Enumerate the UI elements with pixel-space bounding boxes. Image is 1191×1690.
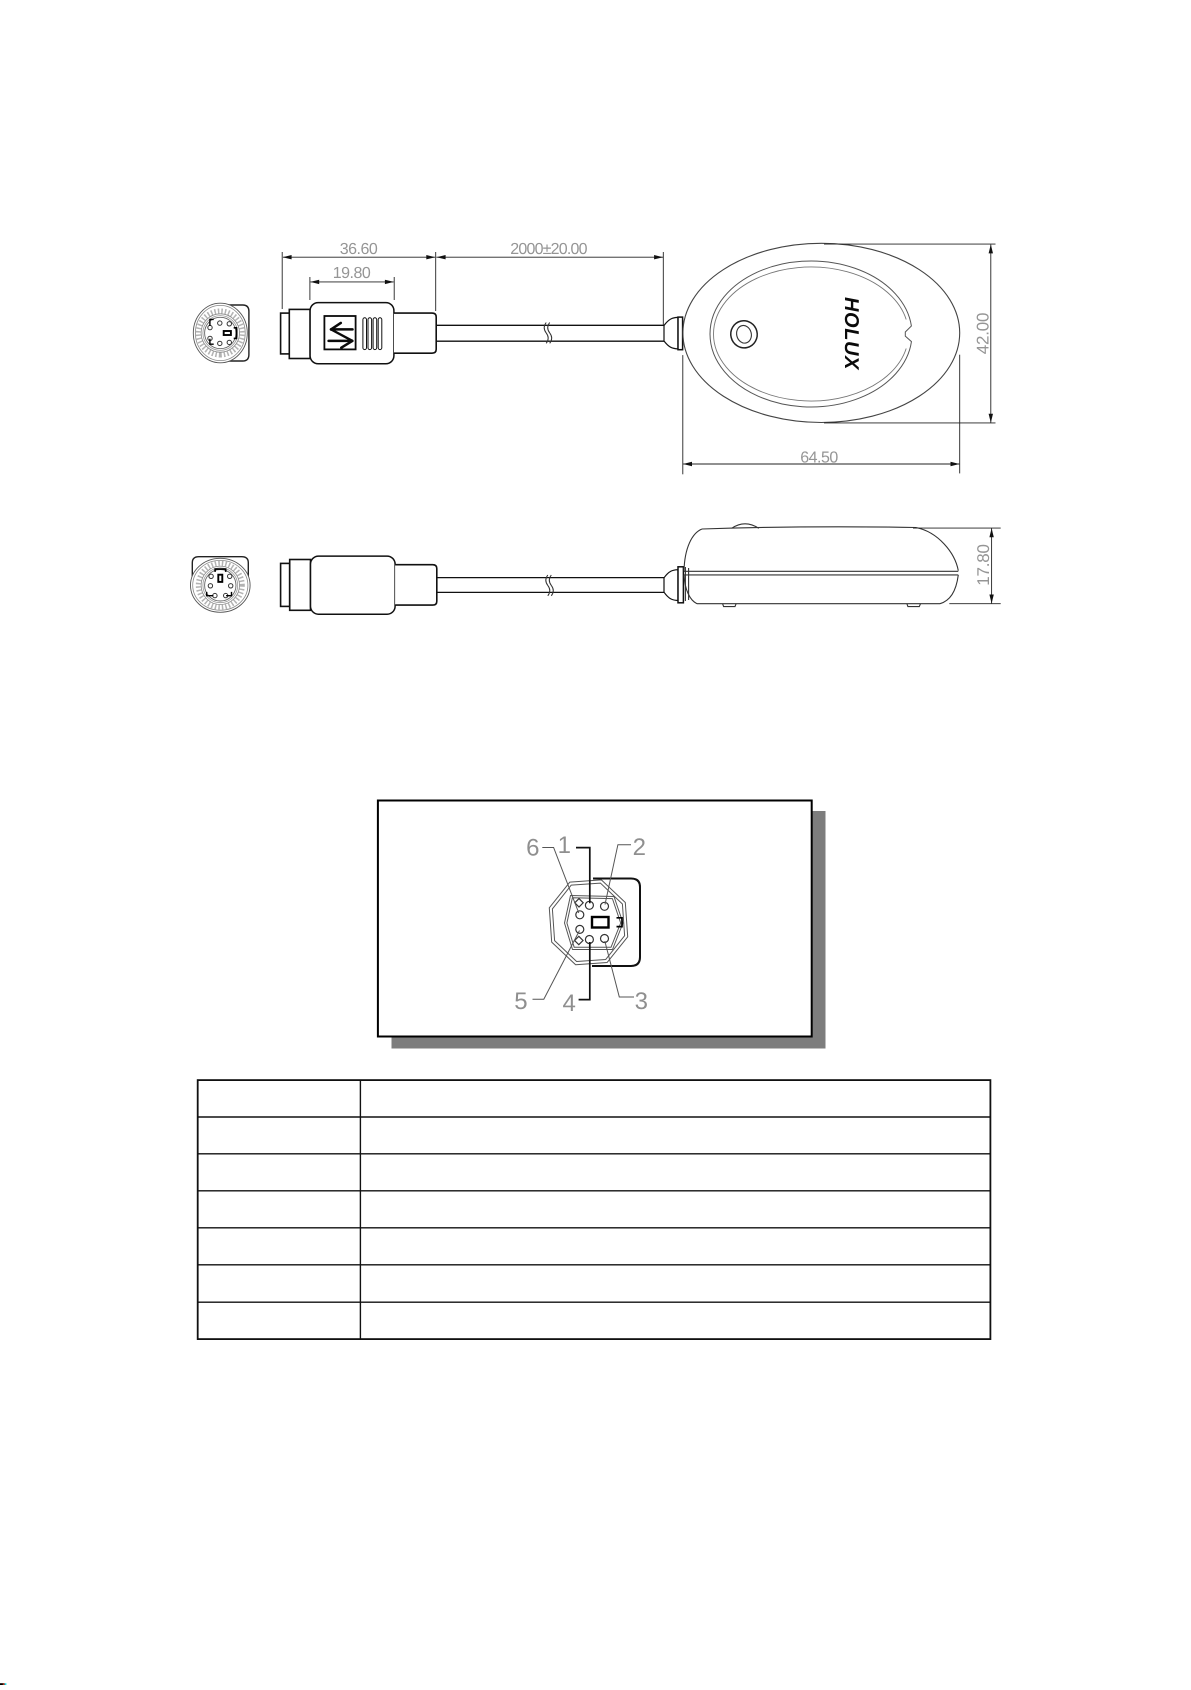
svg-text:1: 1 [558,832,571,859]
svg-text:3: 3 [635,988,648,1015]
svg-text:5: 5 [514,988,527,1015]
svg-text:19.80: 19.80 [333,265,371,282]
svg-text:2000±20.00: 2000±20.00 [510,241,587,258]
svg-text:17.80: 17.80 [974,544,993,586]
svg-text:HOLUX: HOLUX [840,297,862,371]
svg-text:64.50: 64.50 [800,450,838,467]
svg-text:36.60: 36.60 [340,241,378,258]
svg-text:2: 2 [633,834,646,861]
svg-text:4: 4 [563,990,576,1017]
svg-text:6: 6 [526,834,539,861]
svg-text:42.00: 42.00 [973,313,992,355]
